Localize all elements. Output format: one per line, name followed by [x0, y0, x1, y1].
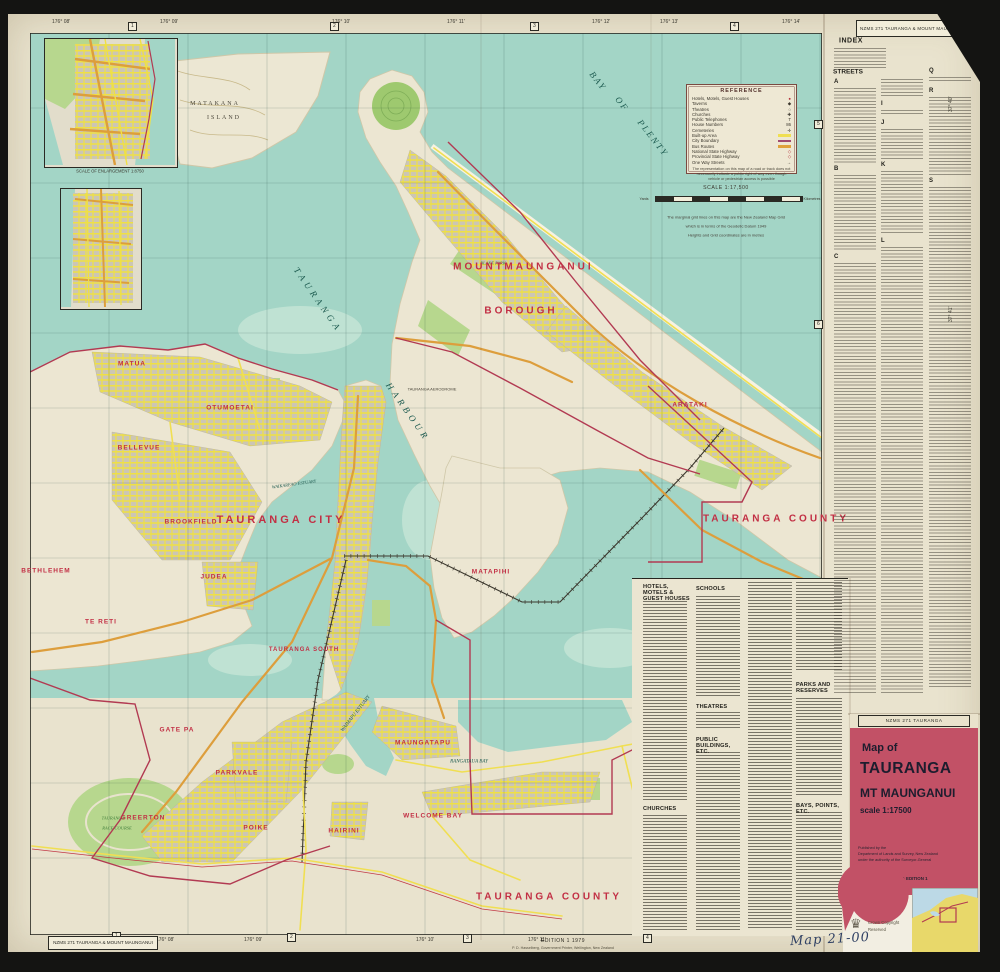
suburb-label-bethlehem: BETHLEHEM — [21, 568, 70, 575]
matakana-island-label: ISLAND — [207, 115, 241, 121]
tauranga-county-label: TAURANGA COUNTY — [476, 892, 622, 903]
cover-strip-box: NZMS 271 TAURANGA — [858, 715, 970, 727]
printer-imprint: P. D. Hasselberg, Government Printer, We… — [512, 946, 614, 950]
latitude-label: 37° 41' — [948, 307, 954, 322]
grid-note-2: which is in terms of the Geodetic Datum … — [686, 224, 767, 229]
index-letter: Q — [929, 68, 934, 74]
directory-entries-block — [796, 812, 842, 930]
index-letter: C — [834, 254, 838, 260]
longitude-label: 176° 08' — [52, 19, 70, 25]
suburb-label-matapihi: MATAPIHI — [472, 569, 510, 576]
grid-ref-box: 2 — [287, 933, 296, 942]
index-title: INDEX — [839, 38, 863, 45]
directory-entries-block — [748, 582, 792, 930]
index-letter: B — [834, 166, 838, 172]
directory-heading-theatres: THEATRES — [696, 704, 742, 710]
scale-bar — [655, 196, 803, 202]
index-letter: L — [881, 238, 885, 244]
suburb-label-tauranga-south: TAURANGA SOUTH — [269, 647, 339, 653]
scale-left-unit: Yards — [639, 197, 648, 201]
longitude-label: 176° 14' — [782, 19, 800, 25]
cover-map-of: Map of — [862, 742, 897, 754]
cemetery-icon: ✛ — [787, 128, 791, 133]
longitude-label: 176° 12' — [592, 19, 610, 25]
city-boundary-chip-icon — [778, 140, 791, 143]
copyright-line: Reserved — [868, 927, 886, 932]
sheet-number-box: NZMS 271 TAURANGA & MOUNT MAUNGANUI — [48, 936, 158, 950]
directory-heading-parks: PARKS AND RESERVES — [796, 682, 836, 694]
grid-ref-box: 5 — [814, 120, 823, 129]
cover-subtitle: MT MAUNGANUI — [860, 786, 955, 800]
index-entries-block — [881, 247, 923, 693]
matakana-island-label: MATAKANA — [190, 101, 240, 107]
index-entries-block — [881, 171, 923, 235]
index-streets-heading: STREETS — [833, 69, 863, 76]
racecourse-label: RACE COURSE — [102, 826, 132, 831]
directory-entries-block — [643, 815, 687, 930]
index-entries-block — [834, 263, 876, 693]
suburb-label-welcome-bay: WELCOME BAY — [403, 813, 463, 820]
inset-cbd-art — [45, 39, 175, 165]
suburb-label-gate-pa: GATE PA — [160, 727, 195, 734]
grid-note-1: The marginal grid lines on this map are … — [667, 215, 785, 220]
cover-strip: NZMS 271 TAURANGA — [850, 714, 978, 728]
longitude-label: 176° 11' — [447, 19, 465, 25]
suburb-label-poike: POIKE — [243, 825, 268, 832]
longitude-label: 176° 08' — [156, 937, 174, 943]
cover-title: TAURANGA — [860, 760, 952, 778]
index-entries-block — [929, 77, 971, 83]
inset-cbd-enlargement — [44, 38, 178, 168]
directory-heading-schools: SCHOOLS — [696, 586, 742, 592]
cover-publisher-line: Department of Lands and Survey, New Zeal… — [858, 852, 938, 856]
reference-legend: REFERENCE Hotels, Motels, Guest Houses● … — [686, 84, 797, 174]
photo-top-shadow — [0, 0, 1000, 14]
index-entries-block — [929, 187, 971, 687]
copyright-line: Crown Copyright — [868, 920, 899, 925]
index-intro-paragraph — [834, 48, 886, 68]
grid-ref-box: 3 — [463, 934, 472, 943]
grid-ref-box: 4 — [730, 22, 739, 31]
directory-heading-churches: CHURCHES — [643, 806, 691, 812]
borough-label: BOROUGH — [484, 306, 557, 317]
grid-note-3: Heights and Grid coordinates are in metr… — [688, 233, 764, 238]
grid-ref-box: 6 — [814, 320, 823, 329]
builtup-chip-icon — [778, 134, 791, 137]
suburb-label-parkvale: PARKVALE — [216, 770, 259, 777]
directory-entries-block — [696, 712, 740, 730]
index-entries-block — [881, 129, 923, 159]
edition-label: EDITION 1 1979 — [541, 938, 585, 944]
grid-ref-box: 2 — [330, 22, 339, 31]
inset-caption: SCALE OF ENLARGEMENT 1:8750 — [76, 169, 144, 174]
suburb-label-arataki: ARATAKI — [672, 402, 707, 409]
photo-left-shadow — [0, 0, 8, 972]
locator-map — [912, 888, 978, 952]
longitude-label: 176° 09' — [160, 19, 178, 25]
suburb-label-otumoetai: OTUMOETAI — [206, 405, 254, 412]
rangataua-bay-label: RANGATAUA BAY — [450, 760, 488, 765]
index-entries-block — [834, 175, 876, 251]
index-entries-block — [834, 88, 876, 164]
longitude-label: 176° 13' — [660, 19, 678, 25]
index-letter: K — [881, 162, 885, 168]
grid-ref-box: 4 — [643, 934, 652, 943]
longitude-label: 176° 10' — [416, 937, 434, 943]
longitude-label: 176° 09' — [244, 937, 262, 943]
directory-entries-block — [696, 596, 740, 698]
index-letter: I — [881, 101, 883, 107]
suburb-label-maungatapu: MAUNGATAPU — [395, 740, 451, 747]
directory-entries-block — [643, 601, 687, 801]
index-letter: J — [881, 120, 884, 126]
suburb-label-te-reti: TE RETI — [85, 619, 117, 626]
photo-bottom-shadow — [0, 952, 1000, 972]
aerodrome-label: TAURANGA AERODROME — [408, 387, 457, 392]
suburb-label-hairini: HAIRINI — [328, 828, 359, 835]
index-entries-block — [881, 110, 923, 116]
scanned-map-photo: SCALE OF ENLARGEMENT 1:8750 REFERENCE Ho… — [0, 0, 1000, 972]
index-letter: R — [929, 88, 933, 94]
legend-note: The representation on this map of a road… — [692, 167, 791, 181]
directory-entries-block — [696, 752, 740, 930]
inset-mount-art — [61, 189, 139, 307]
maunganui-label: MAUNGANUI — [504, 262, 593, 273]
bus-route-chip-icon — [778, 145, 791, 148]
one-way-arrow-icon: → — [787, 160, 791, 165]
grid-ref-box: 1 — [128, 22, 137, 31]
tauranga-city-label: TAURANGA CITY — [217, 514, 346, 526]
suburb-label-bellevue: BELLEVUE — [118, 445, 161, 452]
scale-right-unit: Kilometres — [804, 197, 821, 201]
legend-title: REFERENCE — [692, 88, 791, 94]
index-entries-block — [881, 79, 923, 97]
tauranga-county-label: TAURANGA COUNTY — [703, 514, 849, 525]
grid-ref-box: 3 — [530, 22, 539, 31]
cover-publisher-line: Published by the — [858, 846, 886, 850]
scale-title: SCALE 1:17,500 — [703, 185, 749, 191]
index-letter: S — [929, 178, 933, 184]
photo-right-shadow — [980, 0, 1000, 972]
suburb-label-matua: MATUA — [118, 361, 146, 368]
index-letter: A — [834, 79, 838, 85]
latitude-label: 37° 40' — [948, 97, 954, 112]
suburb-label-greerton: GREERTON — [121, 815, 166, 822]
fold-crease — [480, 14, 482, 940]
cover-scale: scale 1:17500 — [860, 806, 912, 815]
suburb-label-judea: JUDEA — [200, 574, 227, 581]
directory-entries-block — [796, 698, 842, 795]
mount-label: MOUNT — [453, 262, 505, 273]
suburb-label-brookfield: BROOKFIELD — [165, 519, 218, 526]
directory-heading-hotels: HOTELS, MOTELS & GUEST HOUSES — [643, 584, 691, 603]
inset-mount-enlargement — [60, 188, 142, 310]
